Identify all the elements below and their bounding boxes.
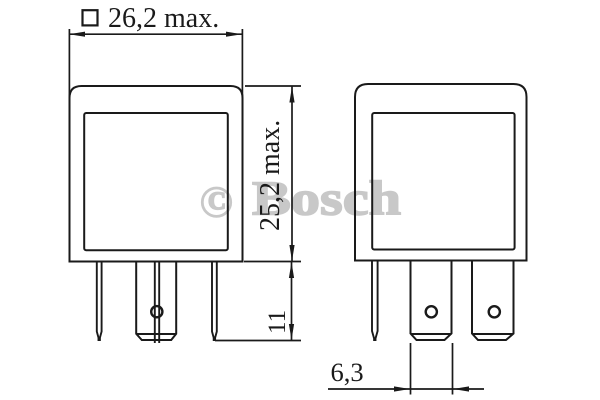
svg-text:25,2 max.: 25,2 max. [255, 120, 286, 231]
svg-text:C: C [208, 188, 226, 215]
svg-text:26,2 max.: 26,2 max. [108, 3, 219, 34]
svg-text:11: 11 [264, 310, 291, 334]
svg-text:6,3: 6,3 [331, 357, 364, 387]
